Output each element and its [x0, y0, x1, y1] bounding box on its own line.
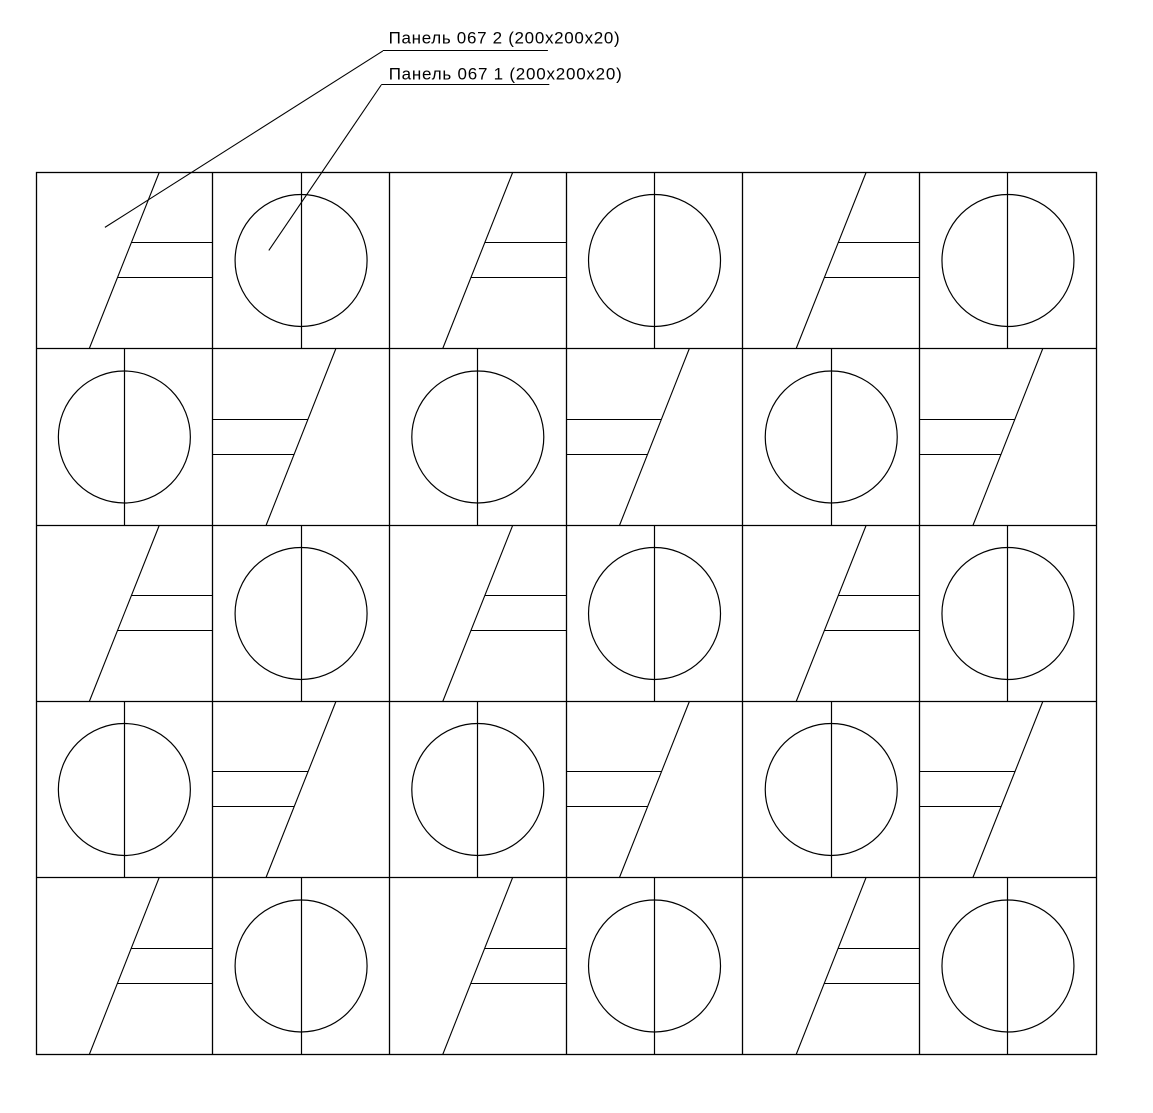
- svg-text:Панель 067 2 (200x200x20): Панель 067 2 (200x200x20): [389, 28, 620, 47]
- svg-text:Панель 067 1 (200x200x20): Панель 067 1 (200x200x20): [389, 64, 622, 83]
